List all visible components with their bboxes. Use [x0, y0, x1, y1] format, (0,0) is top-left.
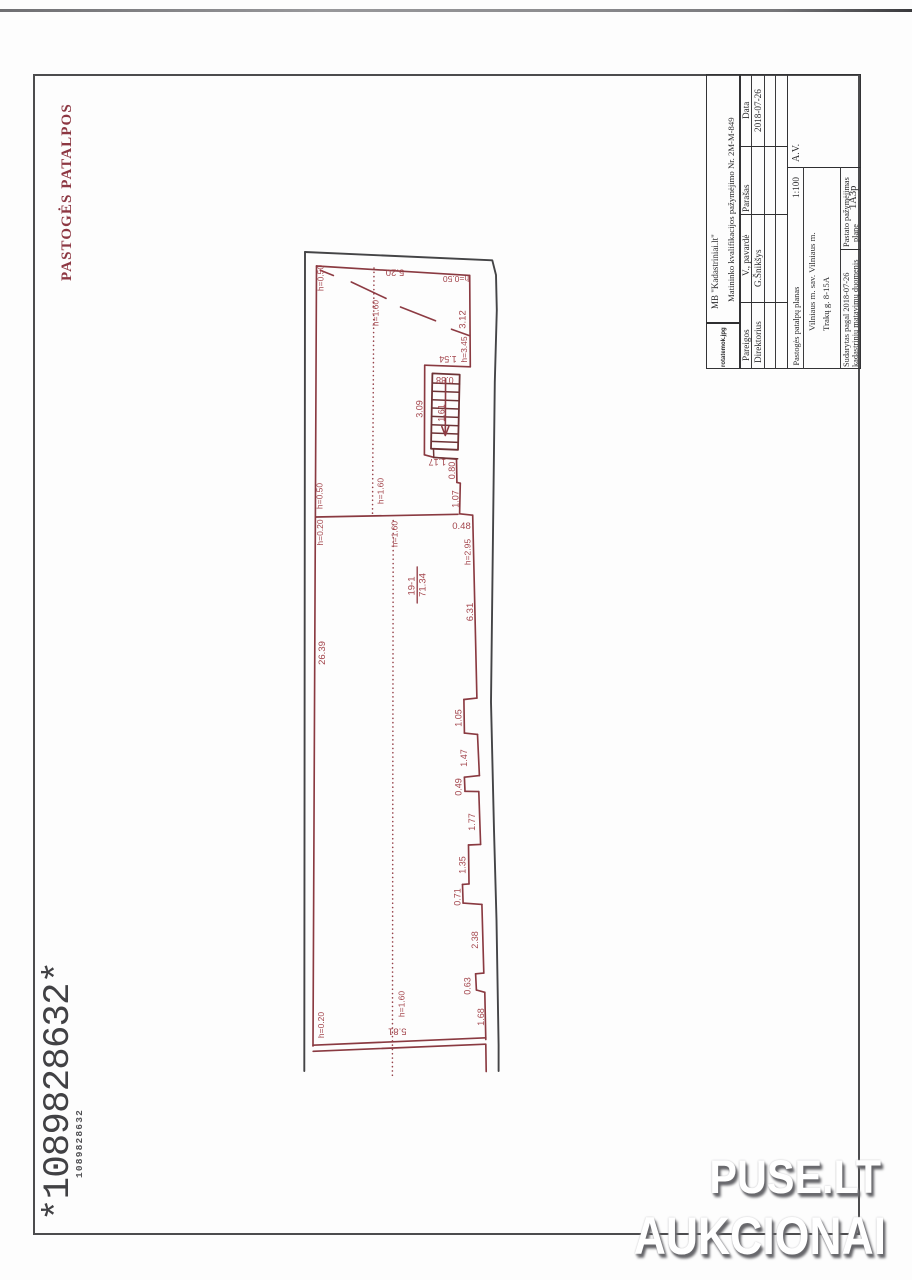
- svg-text:1.07: 1.07: [450, 490, 460, 508]
- svg-text:19-1: 19-1: [406, 576, 417, 595]
- svg-text:h=0.50: h=0.50: [315, 483, 325, 510]
- svg-text:1.47: 1.47: [459, 749, 469, 767]
- svg-text:0.49: 0.49: [453, 778, 463, 796]
- svg-text:h=0.50: h=0.50: [443, 274, 470, 284]
- svg-text:6.31: 6.31: [465, 603, 476, 622]
- svg-text:h=0.20: h=0.20: [316, 1012, 326, 1039]
- svg-text:1.05: 1.05: [453, 709, 463, 727]
- svg-text:3.12: 3.12: [458, 310, 469, 329]
- svg-text:5.81: 5.81: [388, 1026, 407, 1037]
- svg-text:2.38: 2.38: [470, 931, 480, 949]
- svg-text:5.20: 5.20: [386, 267, 405, 278]
- svg-text:0.71: 0.71: [452, 888, 462, 906]
- svg-text:0.63: 0.63: [462, 977, 472, 995]
- svg-text:h=1.60: h=1.60: [376, 478, 386, 505]
- svg-text:1.77: 1.77: [467, 813, 477, 831]
- svg-text:1.17: 1.17: [429, 457, 447, 467]
- svg-text:h=1.60: h=1.60: [396, 991, 406, 1018]
- svg-text:h=1.60: h=1.60: [371, 300, 381, 327]
- svg-text:3.09: 3.09: [415, 400, 425, 418]
- svg-text:1.35: 1.35: [457, 856, 467, 874]
- svg-text:h=1.60: h=1.60: [390, 521, 400, 548]
- svg-text:71.34: 71.34: [417, 573, 428, 597]
- svg-text:h=0.50: h=0.50: [316, 265, 326, 292]
- svg-text:h=3.45: h=3.45: [459, 336, 469, 363]
- svg-text:1.61: 1.61: [437, 404, 447, 422]
- svg-text:1.68: 1.68: [476, 1008, 486, 1026]
- svg-text:h=2.95: h=2.95: [463, 539, 473, 566]
- svg-text:26.39: 26.39: [317, 641, 328, 665]
- svg-text:0.80: 0.80: [447, 462, 457, 480]
- svg-text:1.54: 1.54: [439, 354, 457, 364]
- svg-text:0.88: 0.88: [436, 375, 454, 385]
- svg-text:h=0.20: h=0.20: [315, 519, 325, 546]
- svg-text:0.48: 0.48: [452, 521, 471, 532]
